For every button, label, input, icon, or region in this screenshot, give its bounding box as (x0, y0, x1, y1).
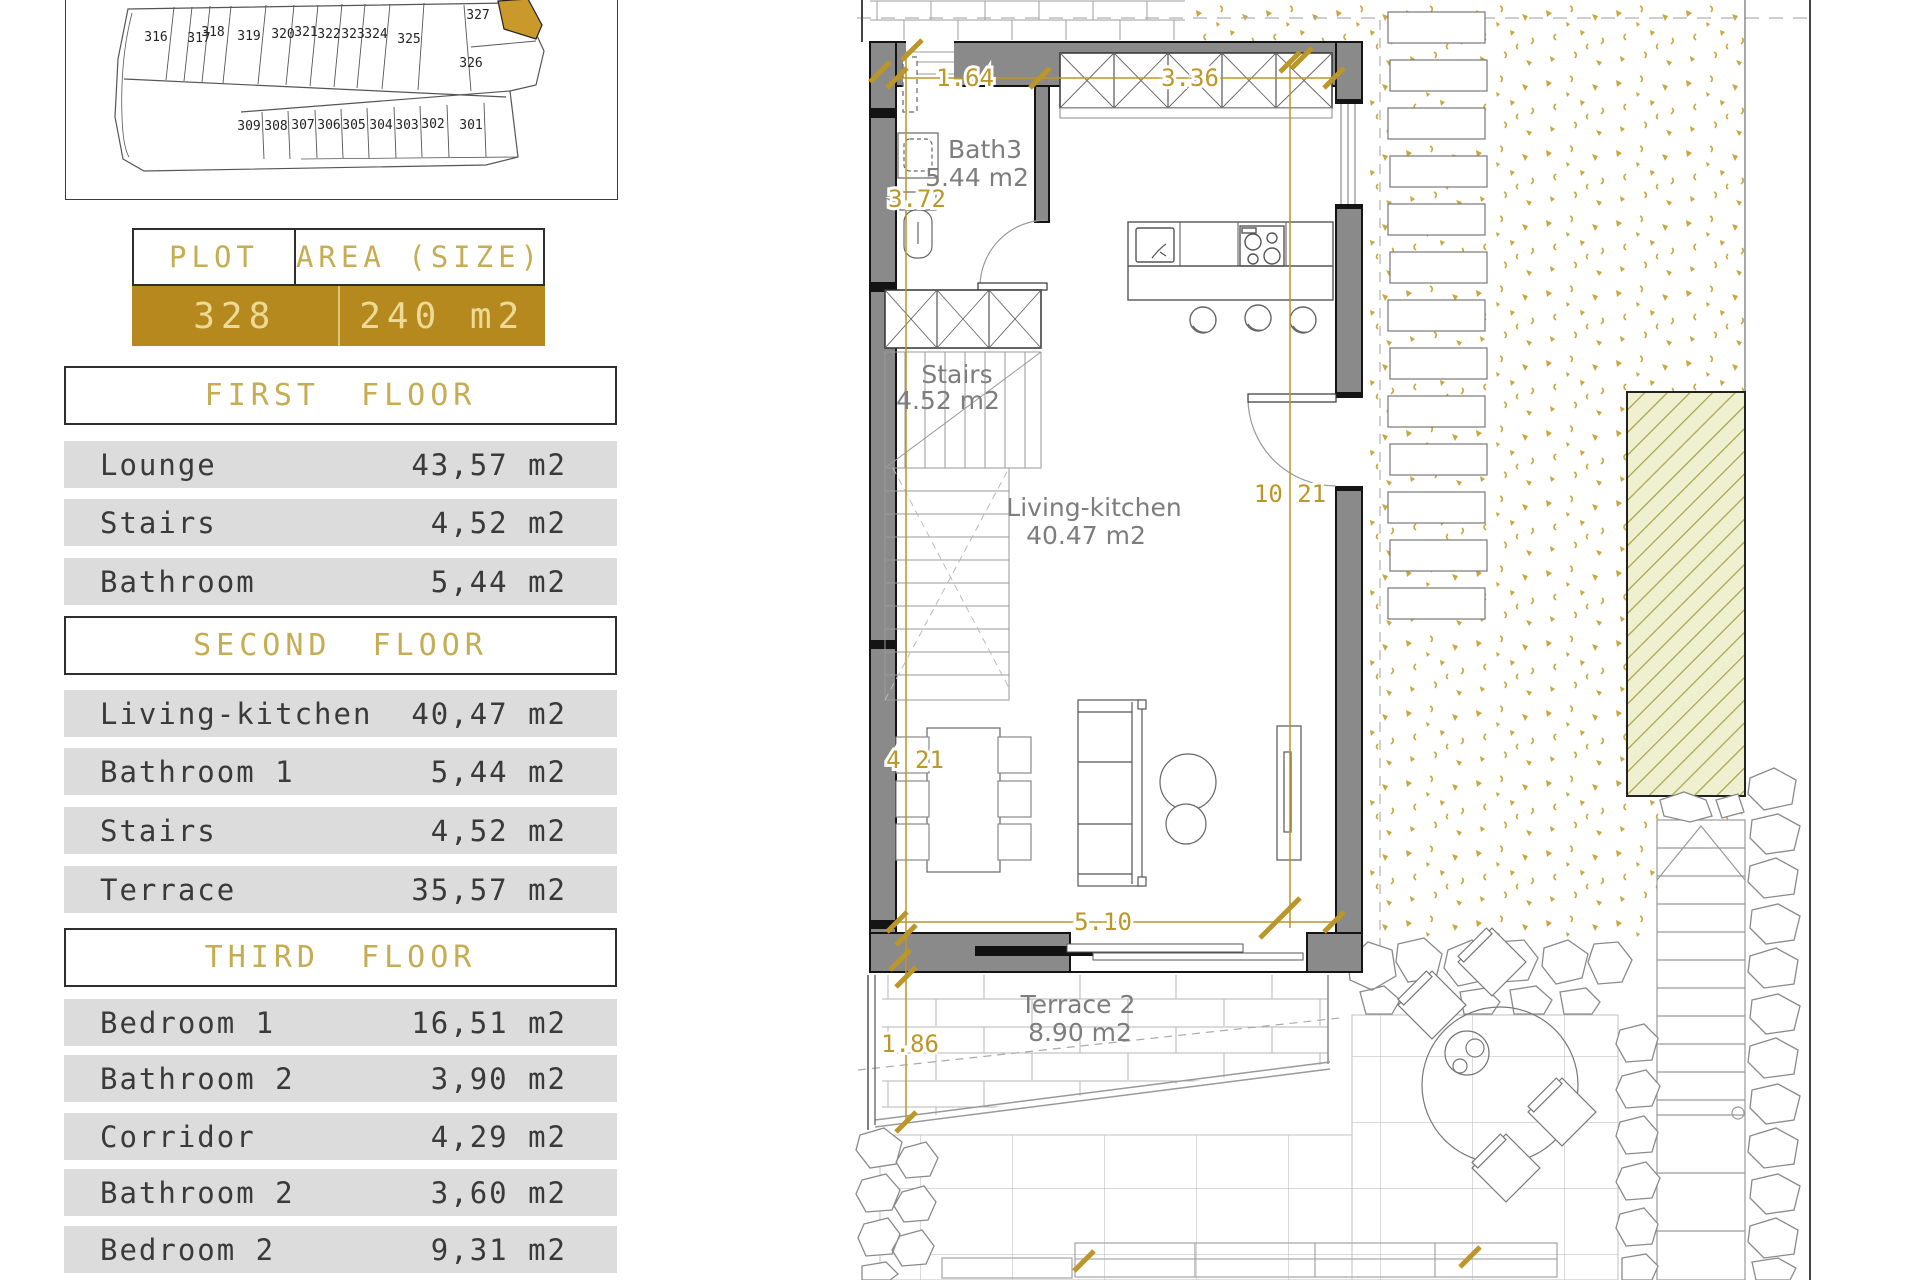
table-row: Bathroom 5,44 m2 (64, 558, 617, 605)
dim-3-36: 3.36 (1161, 64, 1219, 92)
room-area-bath3: 5.44 m2 (925, 163, 1029, 192)
room-area-terrace2: 8.90 m2 (1028, 1018, 1132, 1047)
room-area: 3,90 m2 (431, 1062, 567, 1096)
plot-number: 309 (237, 119, 260, 134)
plot-number-value: 328 (132, 286, 338, 346)
plan-sheet: 1.64 3.36 3.72 10 21 4 21 5.10 1.86 Bath… (0, 0, 1920, 1280)
table-row: Bathroom 2 3,60 m2 (64, 1169, 617, 1216)
plot-number: 316 (144, 30, 167, 45)
table-row: Bedroom 2 9,31 m2 (64, 1226, 617, 1273)
room-area: 4,29 m2 (431, 1120, 567, 1154)
room-name: Terrace (100, 873, 236, 907)
room-area: 16,51 m2 (411, 1006, 567, 1040)
round-table (1160, 754, 1216, 810)
hatched-planter (1627, 392, 1745, 796)
plot-column-header: PLOT (134, 230, 294, 284)
dim-1-64: 1.64 (936, 64, 994, 92)
plot-number: 322 (317, 27, 340, 42)
sofa (1078, 700, 1146, 886)
room-area: 3,60 m2 (431, 1176, 567, 1210)
room-name: Lounge (100, 448, 217, 482)
table-row: Stairs 4,52 m2 (64, 499, 617, 546)
room-label-living-kitchen: Living-kitchen (1006, 493, 1181, 522)
plot-number: 325 (397, 32, 420, 47)
room-name: Living-kitchen (100, 697, 372, 731)
round-pouf (1166, 804, 1206, 844)
site-map: 316 317 318 319 320 321 322 323 324 325 … (65, 0, 618, 200)
third-floor-header: THIRD FLOOR (64, 928, 617, 987)
room-area: 4,52 m2 (431, 814, 567, 848)
second-floor-header: SECOND FLOOR (64, 616, 617, 675)
room-area: 9,31 m2 (431, 1233, 567, 1267)
plot-number: 324 (364, 27, 388, 42)
sideboard (1277, 726, 1301, 860)
room-area: 35,57 m2 (411, 873, 567, 907)
plot-number: 303 (395, 118, 418, 133)
table-row: Bathroom 1 5,44 m2 (64, 748, 617, 795)
table-row: Bathroom 2 3,90 m2 (64, 1055, 617, 1102)
room-name: Bedroom 2 (100, 1233, 275, 1267)
plot-number: 302 (421, 117, 444, 132)
plot-number: 318 (201, 25, 224, 40)
room-name: Bedroom 1 (100, 1006, 275, 1040)
area-column-header: AREA (SIZE) (294, 230, 543, 284)
kitchen-island (1128, 222, 1333, 333)
room-name: Corridor (100, 1120, 256, 1154)
room-area: 5,44 m2 (431, 755, 567, 789)
room-name: Stairs (100, 814, 217, 848)
plot-number: 301 (459, 118, 482, 133)
dim-4-21: 4 21 (886, 746, 944, 774)
table-row: Bedroom 1 16,51 m2 (64, 999, 617, 1046)
room-label-stairs: Stairs (921, 360, 992, 389)
plot-number: 326 (459, 56, 482, 71)
plot-number: 327 (466, 8, 489, 23)
plot-number: 304 (369, 118, 393, 133)
room-label-bath3: Bath3 (948, 135, 1022, 164)
bar-stools (1190, 305, 1316, 333)
room-area-living-kitchen: 40.47 m2 (1026, 521, 1146, 550)
plot-number: 323 (341, 27, 364, 42)
room-area: 4,52 m2 (431, 506, 567, 540)
garden-walkway (1657, 820, 1745, 1280)
plot-number: 320 (271, 27, 294, 42)
dim-5-10: 5.10 (1074, 908, 1132, 936)
room-label-terrace2: Terrace 2 (1020, 990, 1136, 1019)
room-name: Bathroom 2 (100, 1176, 295, 1210)
room-area-stairs: 4.52 m2 (896, 386, 1000, 415)
table-row: Stairs 4,52 m2 (64, 807, 617, 854)
plot-number: 305 (342, 118, 365, 133)
room-area: 40,47 m2 (411, 697, 567, 731)
room-area: 43,57 m2 (411, 448, 567, 482)
first-floor-header: FIRST FLOOR (64, 366, 617, 425)
room-area: 5,44 m2 (431, 565, 567, 599)
room-name: Bathroom (100, 565, 256, 599)
plot-table-header: PLOT AREA (SIZE) (132, 228, 545, 286)
plot-number: 307 (291, 118, 314, 133)
shower-icon (903, 57, 917, 112)
plot-table-row: 328 240 m2 (132, 286, 545, 346)
room-name: Bathroom 2 (100, 1062, 295, 1096)
table-row: Living-kitchen 40,47 m2 (64, 690, 617, 737)
table-row: Terrace 35,57 m2 (64, 866, 617, 913)
table-row: Corridor 4,29 m2 (64, 1113, 617, 1160)
plot-number: 319 (237, 29, 260, 44)
plot-number: 306 (317, 118, 340, 133)
room-name: Bathroom 1 (100, 755, 295, 789)
dim-1-86: 1.86 (881, 1030, 939, 1058)
dim-10-21: 10 21 (1254, 480, 1326, 508)
room-name: Stairs (100, 506, 217, 540)
table-row: Lounge 43,57 m2 (64, 441, 617, 488)
plot-number: 308 (264, 119, 287, 134)
plot-area-value: 240 m2 (338, 286, 546, 346)
wardrobe-closets (885, 53, 1332, 348)
living-furniture (896, 700, 1301, 886)
plot-number: 321 (294, 25, 317, 40)
